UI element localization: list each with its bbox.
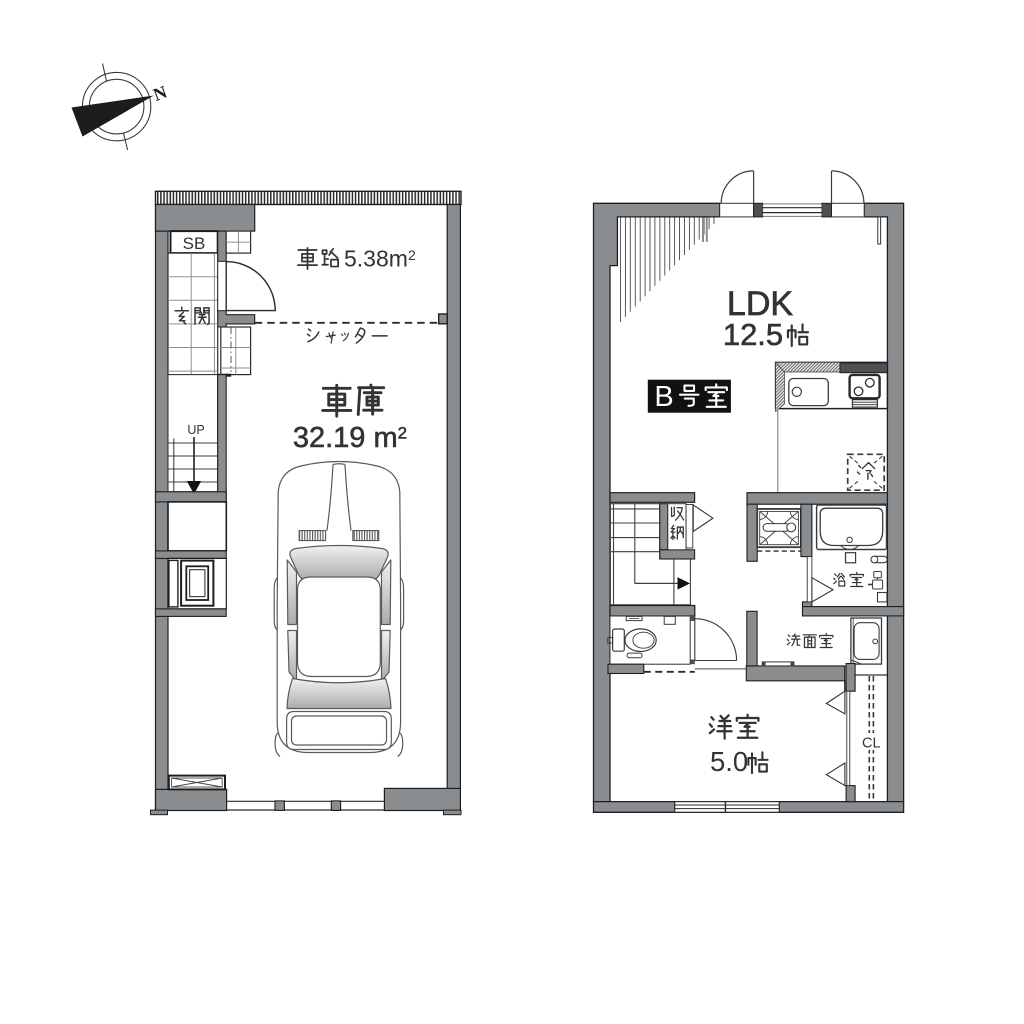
svg-text:5.38m2: 5.38m2: [344, 246, 416, 272]
svg-text:5.0: 5.0: [710, 746, 748, 777]
svg-text:CL: CL: [862, 736, 881, 752]
svg-text:B: B: [654, 381, 673, 413]
svg-text:32.19 m2: 32.19 m2: [293, 422, 407, 454]
svg-text:SB: SB: [183, 234, 206, 253]
svg-text:UP: UP: [187, 423, 204, 437]
svg-text:12.5: 12.5: [723, 317, 783, 352]
